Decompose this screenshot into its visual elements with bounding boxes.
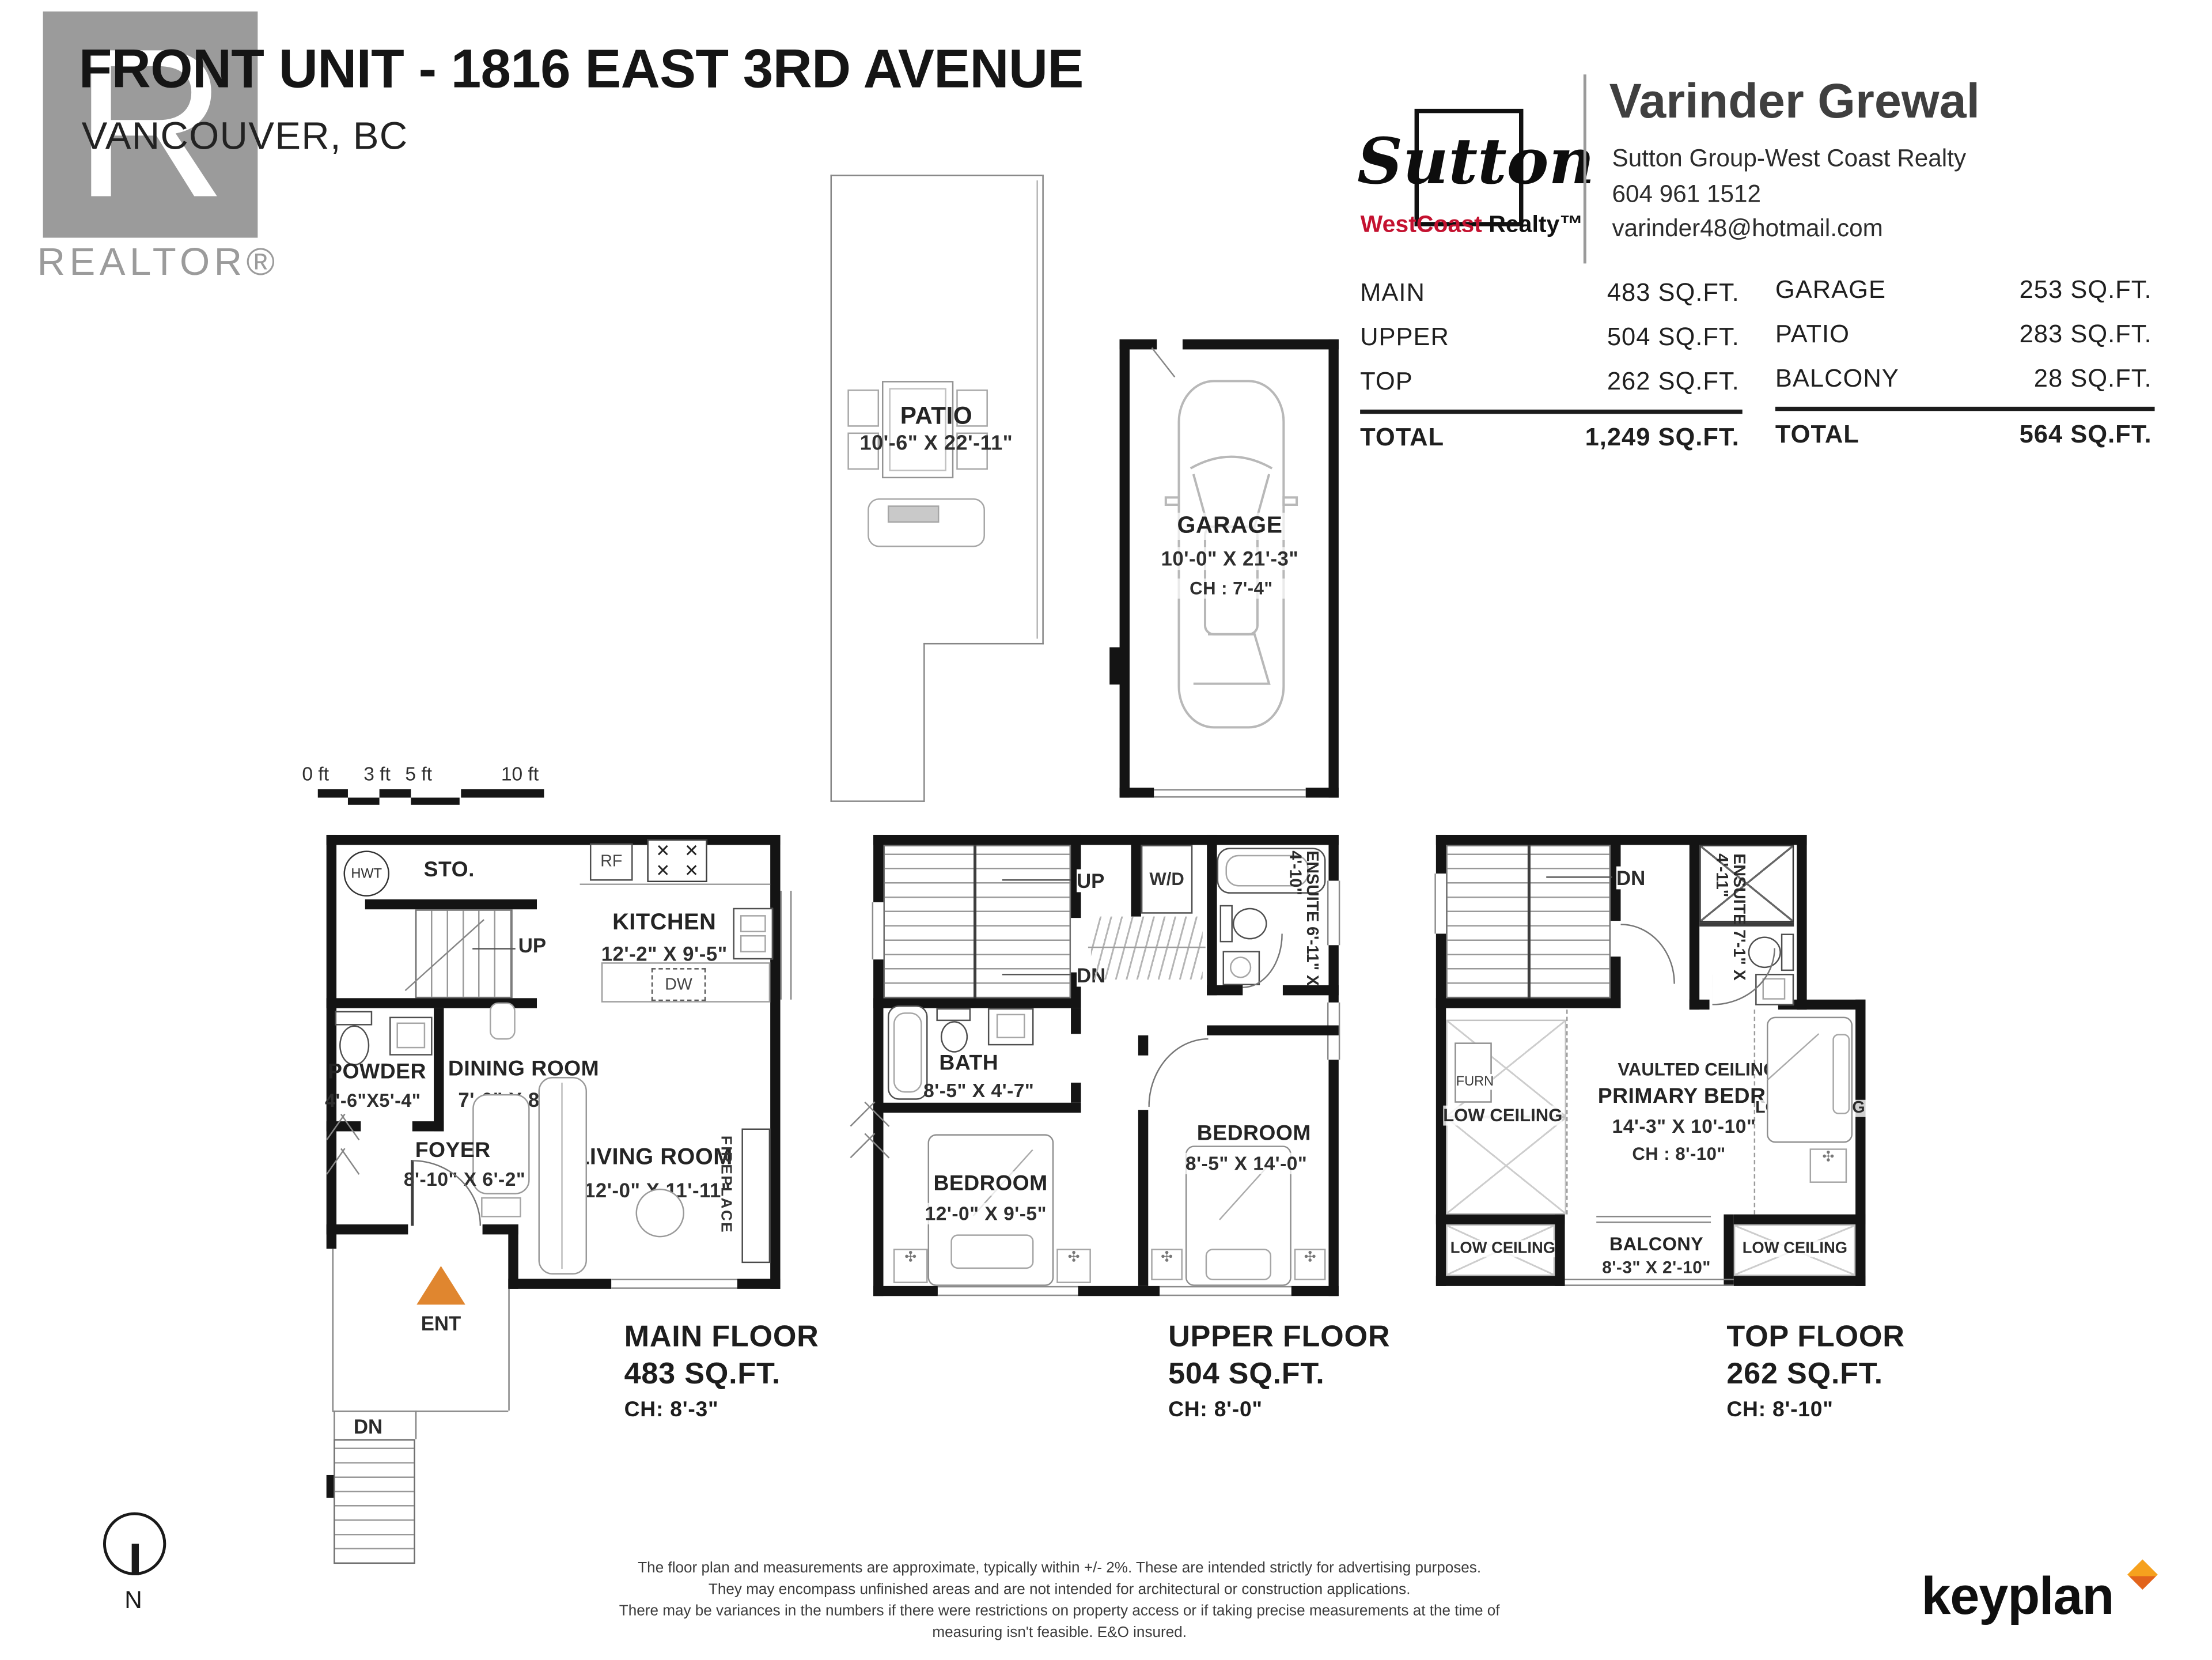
top-floor-ch: CH: 8'-10" [1726, 1398, 1833, 1422]
wall [1797, 835, 1806, 1009]
wall [770, 835, 780, 1289]
bed-pillow [950, 1234, 1033, 1269]
hot-water-tank: HWT [343, 850, 389, 897]
area-row-label: UPPER [1360, 322, 1449, 352]
area-total-label: TOTAL [1360, 422, 1444, 452]
bath-label: BATH [939, 1051, 998, 1075]
wall [1120, 339, 1130, 797]
ceiling-break-line [1566, 1009, 1567, 1214]
balcony-dims: 8'-3" X 2'-10" [1589, 1257, 1724, 1277]
garage-ceiling-height: CH : 7'-4" [1162, 578, 1300, 599]
keyplan-diamond-icon [2127, 1559, 2158, 1590]
area-total-value: 1,249 SQ.FT. [1496, 422, 1740, 452]
wall [1436, 835, 1807, 845]
flower-icon: ✣ [1153, 1250, 1181, 1266]
wall [873, 835, 1339, 845]
staircase [883, 845, 975, 998]
bbq-grill [888, 505, 939, 523]
area-row-value: 28 SQ.FT. [1908, 364, 2152, 394]
stair-leader [1546, 876, 1612, 878]
garage-dims: 10'-0" X 21'-3" [1142, 547, 1317, 570]
balcony-rail [1565, 1279, 1734, 1280]
upper-floor-caption: UPPER FLOOR [1168, 1321, 1390, 1355]
nightstand: ✣ [1151, 1249, 1183, 1280]
wall [434, 1008, 444, 1132]
keyplan-logo: keyplan [1921, 1567, 2113, 1627]
wall [327, 1121, 361, 1131]
bedroom2-dims: 8'-5" X 14'-0" [1185, 1153, 1307, 1174]
porch-outline [415, 1411, 417, 1439]
wall [1436, 1215, 1565, 1224]
bedroom1-dims: 12'-0" X 9'-5" [925, 1203, 1047, 1224]
garage-door [1154, 796, 1305, 797]
garage-door [1154, 789, 1305, 791]
dn-label: DN [1616, 867, 1645, 890]
sutton-realty: Realty™ [1488, 212, 1583, 238]
patio-outline [923, 643, 925, 802]
wall [873, 1103, 1081, 1113]
bed-pillow [1206, 1249, 1271, 1280]
kitchen-label: KITCHEN [584, 911, 744, 937]
porch-outline [332, 1249, 334, 1411]
flower-icon: ✣ [1058, 1250, 1090, 1266]
top-floor-caption: TOP FLOOR [1726, 1321, 1904, 1355]
patio-outline [831, 175, 832, 802]
wall [1436, 1276, 1565, 1285]
window [938, 1286, 1078, 1296]
bathroom-sink [1763, 978, 1786, 1000]
wall [1071, 1083, 1081, 1103]
toilet [1220, 905, 1233, 943]
wall [412, 1121, 444, 1131]
rf-label: RF [591, 845, 631, 879]
burner-icon: ✕ [656, 841, 670, 861]
patio-outline [1042, 175, 1044, 644]
bathroom-sink [997, 1014, 1025, 1038]
fireplace-unit [741, 1128, 770, 1263]
wall [1138, 1110, 1148, 1286]
north-label: N [124, 1587, 142, 1616]
scale-bar [379, 789, 411, 797]
area-row-label: TOP [1360, 366, 1413, 396]
header-divider [1584, 74, 1586, 263]
upper-floor-area: 504 SQ.FT. [1168, 1358, 1324, 1392]
realtor-wordmark: REALTOR® [37, 241, 279, 285]
storage-label: STO. [424, 858, 475, 882]
main-floor-ch: CH: 8'-3" [624, 1398, 719, 1422]
exterior-stairs [334, 1439, 415, 1564]
top-floor-area: 262 SQ.FT. [1726, 1358, 1883, 1392]
table-rule [1360, 410, 1743, 413]
wall [1138, 1035, 1148, 1056]
nightstand: ✣ [1056, 1249, 1091, 1283]
upper-floor-ch: CH: 8'-0" [1168, 1398, 1263, 1422]
area-row-label: GARAGE [1775, 275, 1886, 305]
door-arc [1148, 1038, 1208, 1107]
door-arc [1620, 924, 1675, 984]
flower-icon: ✣ [1296, 1250, 1324, 1266]
wall [1207, 985, 1243, 995]
wall [1328, 339, 1338, 797]
entry-marker-icon [416, 1266, 465, 1304]
wall [1690, 1000, 1710, 1009]
low-ceiling-zone [1446, 1117, 1566, 1215]
main-floor-area: 483 SQ.FT. [624, 1358, 781, 1392]
agent-company: Sutton Group-West Coast Realty [1612, 145, 1967, 173]
wall [327, 835, 336, 1249]
main-floor-caption: MAIN FLOOR [624, 1321, 819, 1355]
flower-icon: ✣ [895, 1250, 926, 1266]
sutton-westcoast: WestCoast [1361, 212, 1482, 238]
dw-label: DW [653, 970, 704, 1000]
counter-line [580, 883, 771, 885]
bedroom1-label: BEDROOM [933, 1171, 1047, 1196]
area-row-value: 283 SQ.FT. [1908, 319, 2152, 349]
area-row-value: 253 SQ.FT. [1908, 275, 2152, 305]
toilet [936, 1008, 971, 1021]
scale-bar [460, 789, 544, 797]
flower-icon: ✣ [1811, 1150, 1846, 1166]
vaulted-ceiling-label: VAULTED CEILING [1618, 1060, 1778, 1080]
area-total-value: 564 SQ.FT. [1908, 419, 2152, 449]
wall [1306, 788, 1339, 797]
living-label: LIVING ROOM [575, 1145, 733, 1171]
washer-dryer: W/D [1141, 845, 1192, 913]
page-subtitle: VANCOUVER, BC [82, 115, 408, 159]
window [1160, 1286, 1291, 1296]
bedroom2-label: BEDROOM [1197, 1121, 1311, 1145]
staircase [1446, 845, 1529, 998]
wall [1690, 835, 1699, 1009]
wall [1120, 788, 1154, 797]
wall [1078, 1286, 1160, 1296]
low-ceiling-label: LOW CEILING [1450, 1240, 1555, 1257]
disclaimer-line: They may encompass unfinished areas and … [601, 1579, 1518, 1601]
foyer-label: FOYER [415, 1139, 491, 1163]
dn-label: DN [354, 1415, 382, 1438]
patio-outline [923, 643, 1044, 645]
window [611, 1279, 737, 1288]
north-arrow-needle [132, 1544, 139, 1575]
wall [1071, 1008, 1081, 1034]
area-row-value: 483 SQ.FT. [1496, 278, 1740, 308]
primary-bedroom-ch: CH : 8'-10" [1632, 1144, 1725, 1164]
dining-decor [490, 1003, 516, 1040]
nightstand: ✣ [893, 1249, 928, 1283]
stair-leader [1002, 879, 1071, 881]
patio-outline [831, 175, 1043, 176]
nightstand: ✣ [1294, 1249, 1326, 1280]
burner-icon: ✕ [656, 861, 670, 881]
powder-dims: 4'-6"X5'-4" [325, 1090, 421, 1111]
sutton-logo-script: Sutton [1357, 126, 1584, 199]
stair-leader [472, 948, 516, 950]
dishwasher: DW [652, 968, 706, 1001]
scale-bar [347, 797, 379, 805]
toilet [941, 1021, 968, 1053]
wd-label: W/D [1142, 846, 1191, 912]
sutton-logo-tagline: WestCoast Realty™ [1354, 212, 1589, 239]
wall [327, 835, 781, 845]
scale-label: 0 ft [302, 763, 329, 785]
bed-pillow [1832, 1034, 1850, 1114]
scale-label: 5 ft [405, 763, 432, 785]
nightstand: ✣ [1810, 1148, 1847, 1183]
bathroom-sink [396, 1023, 425, 1049]
balcony-label: BALCONY [1598, 1233, 1715, 1254]
balcony-rail [1565, 1284, 1734, 1286]
wall [1207, 835, 1217, 995]
porch-outline [332, 1411, 509, 1412]
bifold-door [340, 1148, 360, 1174]
disclaimer: The floor plan and measurements are appr… [601, 1558, 1518, 1644]
low-ceiling-label: LOW CEILING [1743, 1240, 1847, 1257]
patio-dims: 10'-6" X 22'-11" [828, 433, 1046, 456]
floorplan-sheet: R REALTOR® FRONT UNIT - 1816 EAST 3RD AV… [0, 0, 2212, 1660]
wall [365, 899, 537, 909]
bathtub [893, 1012, 922, 1092]
wall [1734, 1276, 1866, 1285]
wall [1555, 1215, 1565, 1286]
area-total-label: TOTAL [1775, 419, 1859, 449]
bath-dims: 8'-5" X 4'-7" [923, 1080, 1034, 1101]
balcony-door [1596, 1221, 1711, 1223]
staircase [415, 909, 513, 998]
wall [873, 1286, 938, 1296]
staircase [1529, 845, 1611, 998]
wall [1724, 1215, 1733, 1286]
garage-label: GARAGE [1157, 513, 1303, 540]
kitchen-dims: 12'-2" X 9'-5" [578, 942, 750, 965]
patio-outline [831, 800, 925, 802]
porch-outline [508, 1289, 510, 1411]
stair-leader [1002, 974, 1071, 975]
balcony-door [1596, 1216, 1711, 1217]
agent-phone: 604 961 1512 [1612, 180, 1761, 209]
patio-label: PATIO [842, 402, 1031, 431]
window [1327, 881, 1340, 946]
door-arc [1243, 933, 1283, 988]
burner-icon: ✕ [684, 841, 699, 861]
armchair [636, 1189, 685, 1238]
wall [1436, 998, 1621, 1008]
area-row-label: MAIN [1360, 278, 1425, 308]
furnace [1455, 1042, 1492, 1102]
page-title: FRONT UNIT - 1816 EAST 3RD AVENUE [79, 40, 1084, 102]
wall [1291, 1286, 1339, 1296]
dining-chair [481, 1197, 521, 1217]
bay-window [850, 1133, 876, 1158]
disclaimer-line: There may be variances in the numbers if… [601, 1601, 1518, 1644]
area-row-value: 262 SQ.FT. [1496, 366, 1740, 396]
hwt-label: HWT [345, 852, 388, 895]
fireplace-label: FIREPLACE [717, 1136, 734, 1265]
scale-bar [318, 789, 347, 797]
up-label: UP [518, 933, 546, 956]
entry-label: ENT [421, 1312, 461, 1335]
patio-outline [1036, 180, 1037, 638]
stair-divider [974, 845, 976, 998]
burner-icon: ✕ [684, 861, 699, 881]
wall [327, 1224, 408, 1234]
window [781, 891, 792, 1000]
powder-label: POWDER [328, 1060, 426, 1084]
agent-name: Varinder Grewal [1609, 74, 1980, 130]
bay-window [850, 1102, 876, 1127]
scale-bar [411, 797, 460, 805]
toilet [1781, 933, 1794, 971]
up-label: UP [1077, 869, 1104, 893]
closet-rod [1088, 947, 1206, 948]
scale-label: 10 ft [501, 763, 539, 785]
low-ceiling-label: LOW CEILING [1443, 1106, 1562, 1126]
wall [1183, 339, 1339, 349]
porch-outline [334, 1411, 335, 1439]
wall [508, 1279, 611, 1288]
stair-divider [1528, 845, 1530, 998]
wall [508, 1224, 518, 1289]
sofa-line [561, 1083, 562, 1269]
refrigerator: RF [590, 844, 633, 881]
stove: ✕✕✕✕ [647, 839, 707, 882]
area-row-value: 504 SQ.FT. [1496, 322, 1740, 352]
furnace-label: FURN [1456, 1074, 1494, 1090]
area-row-label: BALCONY [1775, 364, 1899, 394]
wall [737, 1279, 781, 1288]
primary-bedroom-dims: 14'-3" X 10'-10" [1612, 1116, 1756, 1137]
agent-email: varinder48@hotmail.com [1612, 215, 1883, 244]
table-rule [1775, 407, 2155, 410]
wall [1131, 835, 1141, 917]
wall [1734, 1215, 1866, 1224]
wall [1855, 1000, 1865, 1286]
wall [1207, 1026, 1339, 1035]
ensuite-label: ENSUITE 6'-11" X 4'-10" [1286, 850, 1320, 994]
scale-label: 3 ft [363, 763, 391, 785]
area-row-label: PATIO [1775, 319, 1850, 349]
disclaimer-line: The floor plan and measurements are appr… [601, 1558, 1518, 1579]
toilet [335, 1011, 373, 1026]
wall [1109, 647, 1122, 685]
